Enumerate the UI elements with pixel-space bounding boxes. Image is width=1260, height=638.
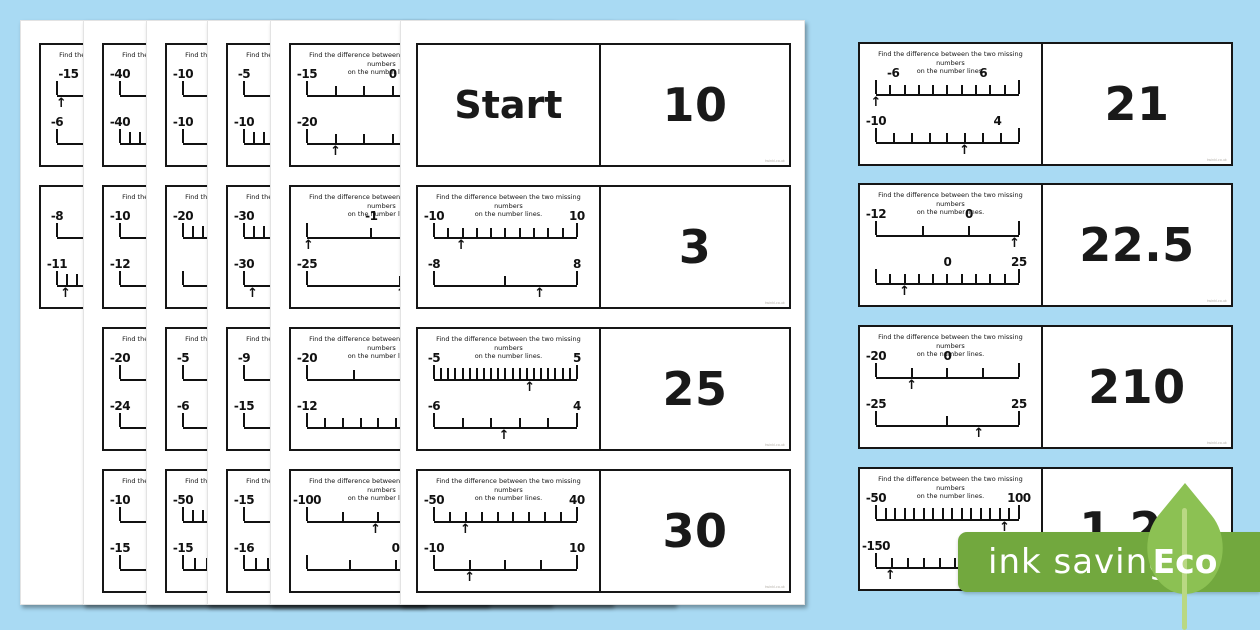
tick-mark bbox=[449, 512, 451, 521]
tick-mark bbox=[360, 418, 362, 427]
tick-mark bbox=[182, 365, 184, 379]
answer-value: 210 bbox=[1088, 360, 1186, 414]
watermark: twinkl.co.uk bbox=[1207, 158, 1227, 162]
number-line-label: 6 bbox=[979, 66, 987, 80]
resource-preview-canvas: Find the difference between the two miss… bbox=[0, 0, 1260, 630]
number-line: -104↑ bbox=[876, 118, 1019, 158]
number-line-label: 40 bbox=[569, 493, 585, 507]
number-line-label: -20 bbox=[173, 209, 193, 223]
tick-mark bbox=[129, 132, 131, 143]
tick-mark bbox=[932, 85, 934, 94]
tick-mark bbox=[462, 228, 464, 237]
number-line-label: -16 bbox=[234, 541, 254, 555]
number-line-label: -15 bbox=[297, 67, 317, 81]
tick-mark bbox=[504, 228, 506, 237]
arrow-up-icon: ↑ bbox=[464, 570, 475, 585]
tick-mark bbox=[942, 508, 944, 519]
number-line-base bbox=[876, 377, 1019, 379]
tick-mark bbox=[889, 274, 891, 283]
tick-mark bbox=[989, 85, 991, 94]
arrow-up-icon: ↑ bbox=[524, 380, 535, 395]
tick-mark bbox=[875, 505, 877, 519]
answer-value: 25 bbox=[662, 362, 727, 416]
tick-mark bbox=[875, 221, 877, 235]
tick-mark bbox=[182, 413, 184, 427]
tick-mark bbox=[253, 226, 255, 237]
number-line-label: 10 bbox=[569, 541, 585, 555]
tick-mark bbox=[576, 223, 578, 237]
tick-mark bbox=[119, 223, 121, 237]
number-line-label: 0 bbox=[965, 207, 973, 221]
start-label: Start bbox=[454, 83, 562, 127]
number-line-label: -40 bbox=[110, 115, 130, 129]
tick-mark bbox=[119, 129, 121, 143]
tick-mark bbox=[923, 558, 925, 567]
card-answer-side: 210twinkl.co.uk bbox=[1043, 327, 1231, 447]
number-line-label: -50 bbox=[424, 493, 444, 507]
number-line-label: 4 bbox=[994, 114, 1002, 128]
number-line-label: 25 bbox=[1011, 255, 1027, 269]
number-line-label: -5 bbox=[238, 67, 250, 81]
tick-mark bbox=[497, 368, 499, 379]
number-line-base bbox=[876, 425, 1019, 427]
number-line-label: -6 bbox=[428, 399, 440, 413]
tick-mark bbox=[907, 558, 909, 567]
tick-mark bbox=[891, 558, 893, 567]
tick-mark bbox=[483, 368, 485, 379]
tick-mark bbox=[929, 133, 931, 142]
tick-mark bbox=[982, 368, 984, 377]
number-line: -88↑ bbox=[434, 261, 577, 301]
arrow-up-icon: ↑ bbox=[973, 426, 984, 441]
tick-mark bbox=[433, 413, 435, 427]
loop-card: Find the difference between the two miss… bbox=[858, 325, 1233, 449]
number-line-label: 100 bbox=[1007, 491, 1031, 505]
tick-mark bbox=[497, 512, 499, 521]
answer-value: 10 bbox=[662, 78, 727, 132]
tick-mark bbox=[562, 368, 564, 379]
number-line-label: -9 bbox=[238, 351, 250, 365]
tick-mark bbox=[370, 228, 372, 237]
arrow-up-icon: ↑ bbox=[60, 286, 71, 301]
number-line-label: -25 bbox=[866, 397, 886, 411]
eco-label: Eco bbox=[1130, 542, 1240, 581]
number-line-base bbox=[434, 521, 577, 523]
number-line-label: -20 bbox=[866, 349, 886, 363]
tick-mark bbox=[964, 133, 966, 142]
tick-mark bbox=[922, 226, 924, 235]
tick-mark bbox=[476, 228, 478, 237]
tick-mark bbox=[547, 418, 549, 427]
tick-mark bbox=[202, 226, 204, 237]
card-answer-side: 21twinkl.co.uk bbox=[1043, 44, 1231, 164]
tick-mark bbox=[875, 80, 877, 94]
tick-mark bbox=[946, 133, 948, 142]
tick-mark bbox=[182, 223, 184, 237]
number-line-label: -1 bbox=[365, 209, 377, 223]
tick-mark bbox=[1008, 508, 1010, 519]
tick-mark bbox=[918, 274, 920, 283]
arrow-up-icon: ↑ bbox=[370, 522, 381, 537]
number-line-label: 0 bbox=[389, 67, 397, 81]
number-line-label: -10 bbox=[234, 115, 254, 129]
tick-mark bbox=[904, 85, 906, 94]
number-line-label: -50 bbox=[866, 491, 886, 505]
number-line-label: -12 bbox=[866, 207, 886, 221]
card-question-side: Find the difference between the two miss… bbox=[418, 329, 601, 449]
number-line-base bbox=[876, 142, 1019, 144]
tick-mark bbox=[533, 228, 535, 237]
tick-mark bbox=[306, 555, 308, 569]
tick-mark bbox=[469, 560, 471, 569]
tick-mark bbox=[349, 560, 351, 569]
number-line-label: -10 bbox=[424, 209, 444, 223]
tick-mark bbox=[119, 507, 121, 521]
tick-mark bbox=[980, 508, 982, 519]
number-line-label: -15 bbox=[173, 541, 193, 555]
tick-mark bbox=[875, 411, 877, 425]
tick-mark bbox=[253, 132, 255, 143]
tick-mark bbox=[519, 368, 521, 379]
number-line-base bbox=[876, 519, 1019, 521]
tick-mark bbox=[447, 368, 449, 379]
number-line: -66↑ bbox=[876, 70, 1019, 110]
tick-mark bbox=[875, 269, 877, 283]
arrow-up-icon: ↑ bbox=[906, 378, 917, 393]
tick-mark bbox=[454, 368, 456, 379]
number-line-label: -25 bbox=[297, 257, 317, 271]
arrow-up-icon: ↑ bbox=[534, 286, 545, 301]
tick-mark bbox=[263, 226, 265, 237]
tick-mark bbox=[462, 368, 464, 379]
tick-mark bbox=[377, 418, 379, 427]
tick-mark bbox=[56, 271, 58, 285]
tick-mark bbox=[1018, 221, 1020, 235]
tick-mark bbox=[989, 274, 991, 283]
number-line-label: 0 bbox=[944, 255, 952, 269]
tick-mark bbox=[392, 134, 394, 143]
number-line-label: -10 bbox=[866, 114, 886, 128]
number-line-label: 0 bbox=[392, 541, 400, 555]
tick-mark bbox=[533, 368, 535, 379]
tick-mark bbox=[911, 133, 913, 142]
answer-value: 22.5 bbox=[1079, 218, 1195, 272]
tick-mark bbox=[951, 508, 953, 519]
tick-mark bbox=[975, 274, 977, 283]
answer-value: 30 bbox=[662, 504, 727, 558]
eco-leaf-icon: Eco bbox=[1130, 478, 1240, 638]
tick-mark bbox=[569, 368, 571, 379]
tick-mark bbox=[243, 271, 245, 285]
arrow-up-icon: ↑ bbox=[460, 522, 471, 537]
tick-mark bbox=[999, 508, 1001, 519]
tick-mark bbox=[1000, 133, 1002, 142]
number-line-label: -6 bbox=[177, 399, 189, 413]
tick-mark bbox=[462, 418, 464, 427]
tick-mark bbox=[946, 274, 948, 283]
number-line-base bbox=[434, 379, 577, 381]
tick-mark bbox=[139, 132, 141, 143]
number-line: -200↑ bbox=[876, 353, 1019, 393]
arrow-up-icon: ↑ bbox=[885, 568, 896, 583]
card-answer-side: 22.5twinkl.co.uk bbox=[1043, 185, 1231, 305]
tick-mark bbox=[961, 85, 963, 94]
tick-mark bbox=[119, 413, 121, 427]
number-line-label: -5 bbox=[428, 351, 440, 365]
loop-card: Find the difference between the two miss… bbox=[416, 185, 791, 309]
tick-mark bbox=[192, 226, 194, 237]
tick-mark bbox=[440, 368, 442, 379]
number-line-label: 4 bbox=[573, 399, 581, 413]
tick-mark bbox=[324, 418, 326, 427]
number-line-label: 10 bbox=[569, 209, 585, 223]
tick-mark bbox=[306, 223, 308, 237]
tick-mark bbox=[554, 368, 556, 379]
loop-card: Find the difference between the two miss… bbox=[858, 183, 1233, 307]
tick-mark bbox=[182, 129, 184, 143]
tick-mark bbox=[540, 368, 542, 379]
tick-mark bbox=[433, 507, 435, 521]
tick-mark bbox=[875, 553, 877, 567]
tick-mark bbox=[490, 418, 492, 427]
number-line-label: -12 bbox=[110, 257, 130, 271]
loop-card: Find the difference between the two miss… bbox=[416, 469, 791, 593]
tick-mark bbox=[528, 512, 530, 521]
tick-mark bbox=[504, 276, 506, 285]
arrow-up-icon: ↑ bbox=[330, 144, 341, 159]
tick-mark bbox=[377, 512, 379, 521]
tick-mark bbox=[560, 512, 562, 521]
tick-mark bbox=[512, 512, 514, 521]
tick-mark bbox=[519, 228, 521, 237]
number-line-base bbox=[434, 285, 577, 287]
tick-mark bbox=[243, 365, 245, 379]
number-line-base bbox=[876, 94, 1019, 96]
tick-mark bbox=[490, 228, 492, 237]
tick-mark bbox=[875, 363, 877, 377]
tick-mark bbox=[56, 223, 58, 237]
number-line-label: 8 bbox=[573, 257, 581, 271]
tick-mark bbox=[243, 129, 245, 143]
arrow-up-icon: ↑ bbox=[456, 238, 467, 253]
tick-mark bbox=[904, 508, 906, 519]
tick-mark bbox=[1018, 411, 1020, 425]
loop-card: Start10twinkl.co.uk bbox=[416, 43, 791, 167]
number-line-base bbox=[876, 235, 1019, 237]
card-answer-side: 25twinkl.co.uk bbox=[601, 329, 789, 449]
tick-mark bbox=[306, 507, 308, 521]
tick-mark bbox=[576, 555, 578, 569]
number-line-label: -15 bbox=[234, 493, 254, 507]
tick-mark bbox=[512, 368, 514, 379]
number-line: 025↑ bbox=[876, 259, 1019, 299]
tick-mark bbox=[946, 368, 948, 377]
tick-mark bbox=[932, 508, 934, 519]
tick-mark bbox=[476, 368, 478, 379]
number-line-label: -50 bbox=[173, 493, 193, 507]
tick-mark bbox=[576, 413, 578, 427]
number-line-base bbox=[876, 283, 1019, 285]
tick-mark bbox=[490, 368, 492, 379]
tick-mark bbox=[243, 507, 245, 521]
tick-mark bbox=[243, 81, 245, 95]
tick-mark bbox=[243, 413, 245, 427]
tick-mark bbox=[267, 558, 269, 569]
tick-mark bbox=[989, 508, 991, 519]
number-line-label: -100 bbox=[293, 493, 321, 507]
tick-mark bbox=[395, 560, 397, 569]
tick-mark bbox=[66, 274, 68, 285]
tick-mark bbox=[562, 228, 564, 237]
number-line-label: -10 bbox=[424, 541, 444, 555]
tick-mark bbox=[182, 271, 184, 285]
tick-mark bbox=[335, 86, 337, 95]
tick-mark bbox=[1018, 128, 1020, 142]
loop-card: Find the difference between the two miss… bbox=[416, 327, 791, 451]
number-line-label: -20 bbox=[297, 351, 317, 365]
number-line: -64↑ bbox=[434, 403, 577, 443]
number-line: -1010↑ bbox=[434, 213, 577, 253]
tick-mark bbox=[182, 555, 184, 569]
tick-mark bbox=[889, 85, 891, 94]
arrow-up-icon: ↑ bbox=[959, 143, 970, 158]
arrow-up-icon: ↑ bbox=[56, 96, 67, 111]
watermark: twinkl.co.uk bbox=[765, 301, 785, 305]
card-answer-side: 10twinkl.co.uk bbox=[601, 45, 789, 165]
tick-mark bbox=[56, 129, 58, 143]
tick-mark bbox=[335, 134, 337, 143]
tick-mark bbox=[1018, 269, 1020, 283]
card-question-side: Find the difference between the two miss… bbox=[418, 471, 601, 591]
tick-mark bbox=[194, 558, 196, 569]
card-question-side: Start bbox=[418, 45, 601, 165]
tick-mark bbox=[961, 274, 963, 283]
number-line: -5040↑ bbox=[434, 497, 577, 537]
tick-mark bbox=[306, 413, 308, 427]
tick-mark bbox=[970, 508, 972, 519]
tick-mark bbox=[504, 560, 506, 569]
tick-mark bbox=[946, 416, 948, 425]
tick-mark bbox=[894, 508, 896, 519]
tick-mark bbox=[875, 128, 877, 142]
number-line-label: -40 bbox=[110, 67, 130, 81]
arrow-up-icon: ↑ bbox=[899, 284, 910, 299]
tick-mark bbox=[904, 274, 906, 283]
tick-mark bbox=[1018, 363, 1020, 377]
answer-value: 3 bbox=[679, 220, 712, 274]
tick-mark bbox=[576, 365, 578, 379]
number-line-label: 5 bbox=[573, 351, 581, 365]
tick-mark bbox=[255, 558, 257, 569]
arrow-up-icon: ↑ bbox=[247, 286, 258, 301]
number-line-label: -15 bbox=[58, 67, 78, 81]
tick-mark bbox=[547, 368, 549, 379]
tick-mark bbox=[893, 133, 895, 142]
tick-mark bbox=[504, 368, 506, 379]
tick-mark bbox=[395, 418, 397, 427]
watermark: twinkl.co.uk bbox=[765, 159, 785, 163]
number-line-label: -10 bbox=[110, 493, 130, 507]
watermark: twinkl.co.uk bbox=[765, 443, 785, 447]
number-line: -55↑ bbox=[434, 355, 577, 395]
tick-mark bbox=[119, 271, 121, 285]
tick-mark bbox=[911, 368, 913, 377]
watermark: twinkl.co.uk bbox=[765, 585, 785, 589]
tick-mark bbox=[182, 507, 184, 521]
tick-mark bbox=[243, 223, 245, 237]
arrow-up-icon: ↑ bbox=[1009, 236, 1020, 251]
tick-mark bbox=[433, 271, 435, 285]
tick-mark bbox=[939, 558, 941, 567]
tick-mark bbox=[192, 510, 194, 521]
number-line-label: -5 bbox=[177, 351, 189, 365]
number-line-label: -8 bbox=[51, 209, 63, 223]
card-question-side: Find the difference between the two miss… bbox=[860, 44, 1043, 164]
card-question-side: Find the difference between the two miss… bbox=[860, 327, 1043, 447]
tick-mark bbox=[306, 271, 308, 285]
tick-mark bbox=[202, 510, 204, 521]
tick-mark bbox=[1004, 85, 1006, 94]
card-question-side: Find the difference between the two miss… bbox=[860, 185, 1043, 305]
front-page: Start10twinkl.co.ukFind the difference b… bbox=[400, 20, 805, 605]
tick-mark bbox=[353, 370, 355, 379]
tick-mark bbox=[56, 81, 58, 95]
tick-mark bbox=[1018, 80, 1020, 94]
tick-mark bbox=[932, 274, 934, 283]
number-line-label: -11 bbox=[47, 257, 67, 271]
tick-mark bbox=[76, 274, 78, 285]
number-line-label: -8 bbox=[428, 257, 440, 271]
number-line-label: -10 bbox=[110, 209, 130, 223]
tick-mark bbox=[433, 365, 435, 379]
tick-mark bbox=[975, 85, 977, 94]
tick-mark bbox=[576, 271, 578, 285]
tick-mark bbox=[119, 365, 121, 379]
watermark: twinkl.co.uk bbox=[1207, 441, 1227, 445]
arrow-up-icon: ↑ bbox=[871, 95, 882, 110]
card-answer-side: 30twinkl.co.uk bbox=[601, 471, 789, 591]
tick-mark bbox=[519, 418, 521, 427]
tick-mark bbox=[961, 508, 963, 519]
number-line: -1010↑ bbox=[434, 545, 577, 585]
answer-value: 21 bbox=[1104, 77, 1169, 131]
tick-mark bbox=[119, 555, 121, 569]
number-line-label: -24 bbox=[110, 399, 130, 413]
tick-mark bbox=[433, 223, 435, 237]
tick-mark bbox=[526, 368, 528, 379]
tick-mark bbox=[576, 507, 578, 521]
number-line-label: 0 bbox=[944, 349, 952, 363]
tick-mark bbox=[342, 512, 344, 521]
tick-mark bbox=[544, 512, 546, 521]
tick-mark bbox=[954, 558, 956, 567]
tick-mark bbox=[243, 555, 245, 569]
arrow-up-icon: ↑ bbox=[303, 238, 314, 253]
tick-mark bbox=[469, 368, 471, 379]
tick-mark bbox=[1018, 505, 1020, 519]
tick-mark bbox=[465, 512, 467, 521]
number-line-label: -15 bbox=[234, 399, 254, 413]
number-line-label: 25 bbox=[1011, 397, 1027, 411]
number-line: -2525↑ bbox=[876, 401, 1019, 441]
tick-mark bbox=[363, 86, 365, 95]
card-answer-side: 3twinkl.co.uk bbox=[601, 187, 789, 307]
number-line-label: -10 bbox=[173, 115, 193, 129]
number-line-label: -15 bbox=[110, 541, 130, 555]
number-line-label: -30 bbox=[234, 209, 254, 223]
number-line-label: -10 bbox=[173, 67, 193, 81]
number-line-label: -6 bbox=[51, 115, 63, 129]
